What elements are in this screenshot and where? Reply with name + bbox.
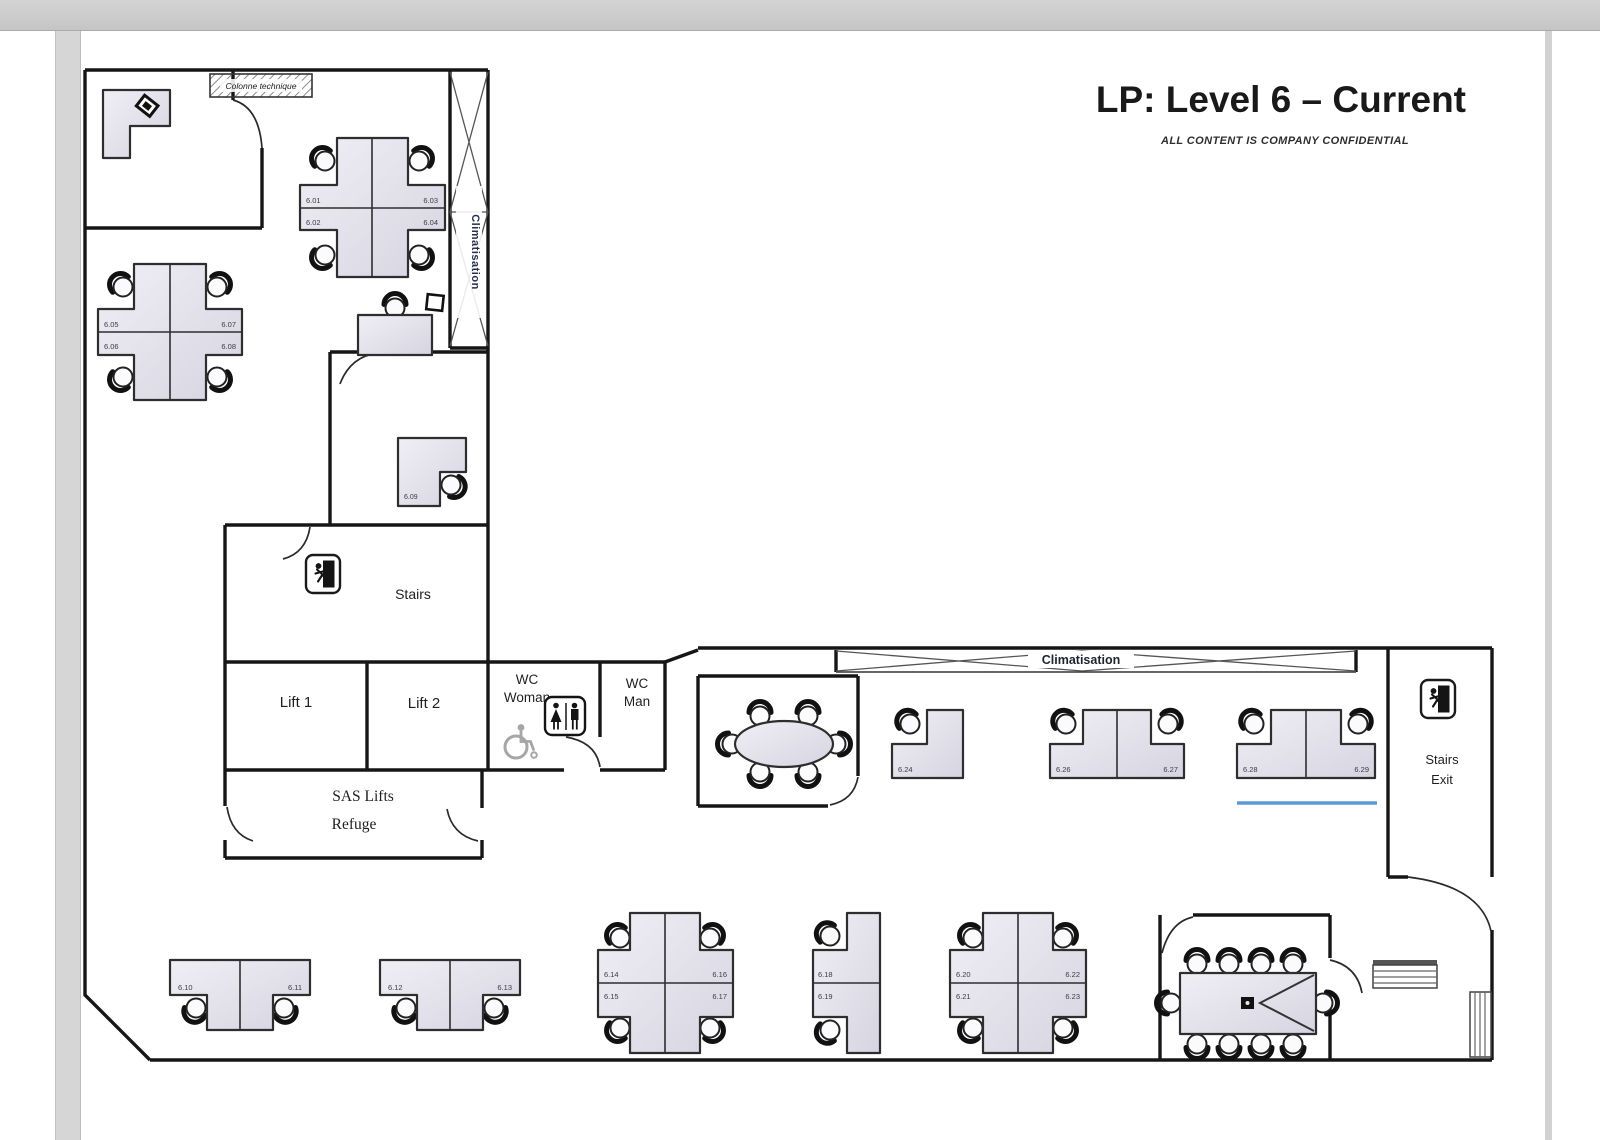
chair: [203, 363, 236, 396]
desk-label-6-11: 6.11: [288, 983, 302, 992]
chair: [1343, 706, 1375, 739]
climatisation-band: Climatisation: [836, 651, 1356, 672]
wc-sign-icon: [545, 697, 585, 735]
desk-label-6-01: 6.01: [306, 196, 321, 205]
desk-label-6-06: 6.06: [104, 342, 119, 351]
desk-label-6-05: 6.05: [104, 320, 119, 329]
desk-label-6-29: 6.29: [1354, 765, 1369, 774]
chair: [1048, 706, 1080, 739]
sas-lifts-label: SAS Lifts: [332, 788, 394, 805]
chair: [270, 995, 299, 1025]
chair: [1236, 706, 1268, 739]
chair: [105, 269, 138, 302]
office-desk-topleft: [103, 90, 170, 158]
floorplan-page: Climatisation Climatisation Colonne tech…: [0, 0, 1600, 1140]
chair: [1282, 1035, 1304, 1059]
desk-label-6-17: 6.17: [712, 992, 727, 1001]
desk-pair-628-629: 6.28 6.29: [1236, 706, 1375, 778]
desk-label-6-24: 6.24: [898, 765, 913, 774]
desk-label-6-16: 6.16: [712, 970, 727, 979]
desk-label-6-09: 6.09: [404, 494, 418, 501]
chair: [391, 995, 420, 1025]
desk-label-6-10: 6.10: [178, 983, 193, 992]
desk-label-6-12: 6.12: [388, 983, 403, 992]
wc-woman-label-2: Woman: [504, 690, 550, 705]
desk-cluster-605-608: 6.05 6.06 6.07 6.08: [98, 264, 242, 400]
chair: [405, 241, 438, 274]
chair: [307, 241, 340, 274]
colonne-technique: Colonne technique: [210, 74, 312, 97]
lift-1-label: Lift 1: [280, 694, 313, 711]
desk-pair-626-627: 6.26 6.27: [1048, 706, 1185, 778]
chair: [105, 363, 138, 396]
chair: [480, 995, 509, 1025]
desk-label-6-28: 6.28: [1243, 765, 1258, 774]
chair: [203, 269, 236, 302]
desk-label-6-21: 6.21: [956, 992, 971, 1001]
chair: [1218, 950, 1240, 974]
desk-label-6-04: 6.04: [423, 218, 438, 227]
wc-man-label-2: Man: [624, 694, 650, 709]
desk-cluster-601-604: 6.01 6.02 6.03 6.04: [300, 138, 445, 277]
desk-label-6-07: 6.07: [221, 320, 236, 329]
chair: [405, 143, 438, 176]
vent-horizontal: [1373, 960, 1437, 988]
desk-label-6-23: 6.23: [1065, 992, 1080, 1001]
stairs-exit-label-2: Exit: [1431, 772, 1453, 787]
desk-cluster-620-623: 6.20 6.21 6.22 6.23: [950, 913, 1086, 1053]
stairs-exit-right-man-icon: [1421, 680, 1455, 718]
chair: [438, 471, 469, 501]
chair: [812, 1015, 845, 1047]
desk-label-6-02: 6.02: [306, 218, 321, 227]
lift-2-label: Lift 2: [408, 695, 441, 712]
climatisation-column: Climatisation: [450, 72, 488, 346]
climatisation-column-label: Climatisation: [469, 214, 481, 290]
wc-man-label-1: WC: [626, 676, 649, 691]
desk-pair-618-619: 6.18 6.19: [812, 913, 880, 1053]
desk-label-6-13: 6.13: [497, 983, 512, 992]
stairs-exit-man-icon: [306, 555, 340, 593]
desk-label-6-22: 6.22: [1065, 970, 1080, 979]
chair: [307, 143, 340, 176]
chair: [1186, 950, 1208, 974]
device-icon: [426, 294, 443, 311]
meeting-oval-table: [718, 702, 851, 787]
desk-label-6-26: 6.26: [1056, 765, 1071, 774]
desk-label-6-03: 6.03: [423, 196, 438, 205]
stairs-exit-label-1: Stairs: [1425, 752, 1459, 767]
desk-label-6-27: 6.27: [1163, 765, 1178, 774]
climatisation-band-label: Climatisation: [1042, 653, 1121, 667]
printer-table: [358, 294, 444, 356]
refuge-label: Refuge: [332, 816, 377, 833]
desk-label-6-20: 6.20: [956, 970, 971, 979]
stairs-label: Stairs: [395, 586, 431, 602]
desk-label-6-19: 6.19: [818, 992, 833, 1001]
vent-vertical: [1470, 992, 1491, 1057]
desk-cluster-614-617: 6.14 6.15 6.16 6.17: [598, 913, 733, 1053]
desk-624: 6.24: [892, 706, 963, 778]
chair: [1153, 706, 1185, 739]
desk-label-6-15: 6.15: [604, 992, 619, 1001]
chair: [1186, 1035, 1208, 1059]
confidential-notice: ALL CONTENT IS COMPANY CONFIDENTIAL: [1160, 135, 1409, 147]
chair: [1250, 1035, 1272, 1059]
desk-label-6-14: 6.14: [604, 970, 619, 979]
colonne-technique-label: Colonne technique: [226, 81, 297, 91]
chair: [1282, 950, 1304, 974]
chair: [1218, 1035, 1240, 1059]
conference-table: [1157, 950, 1338, 1059]
chair: [1250, 950, 1272, 974]
desk-pair-612-613: 6.12 6.13: [380, 960, 520, 1030]
page-title: LP: Level 6 – Current: [1096, 79, 1466, 120]
wc-woman-label-1: WC: [516, 672, 539, 687]
chair: [181, 995, 210, 1025]
walls: [85, 70, 1492, 1060]
projector-lens: [1246, 1001, 1250, 1005]
floorplan-drawing: Climatisation Climatisation Colonne tech…: [0, 0, 1600, 1140]
chair: [812, 918, 845, 950]
chair: [892, 706, 924, 739]
desk-label-6-08: 6.08: [221, 342, 236, 351]
desk-609: 6.09: [398, 438, 469, 506]
desk-label-6-18: 6.18: [818, 970, 833, 979]
desk-pair-610-611: 6.10 6.11: [170, 960, 310, 1030]
wheelchair-icon: [505, 724, 537, 758]
